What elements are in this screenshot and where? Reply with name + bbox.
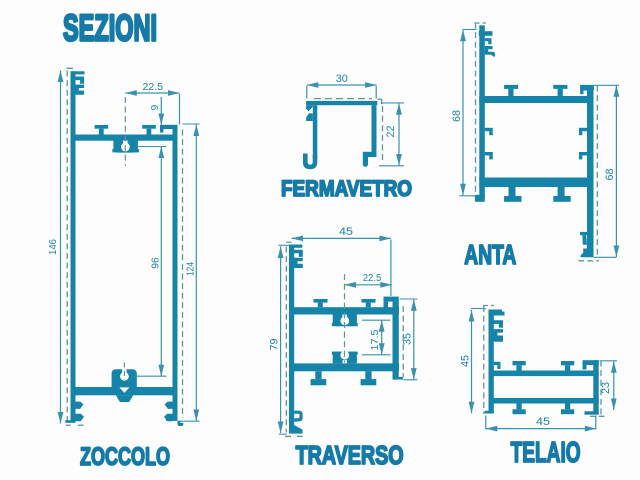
svg-text:23: 23 bbox=[600, 382, 612, 394]
svg-text:22.5: 22.5 bbox=[363, 273, 382, 284]
svg-text:68: 68 bbox=[604, 169, 616, 181]
svg-text:45: 45 bbox=[536, 416, 550, 428]
svg-text:ZOCCOLO: ZOCCOLO bbox=[80, 443, 170, 471]
svg-text:45: 45 bbox=[459, 355, 471, 367]
svg-text:30: 30 bbox=[336, 73, 348, 85]
svg-text:22.5: 22.5 bbox=[143, 82, 164, 93]
svg-text:79: 79 bbox=[269, 339, 281, 351]
svg-text:146: 146 bbox=[47, 239, 59, 255]
svg-text:TRAVERSO: TRAVERSO bbox=[296, 442, 404, 470]
svg-text:96: 96 bbox=[149, 257, 161, 269]
svg-text:17.5: 17.5 bbox=[369, 329, 381, 350]
svg-text:TELAIO: TELAIO bbox=[511, 437, 581, 469]
svg-text:ANTA: ANTA bbox=[464, 239, 516, 270]
svg-text:124: 124 bbox=[185, 262, 197, 276]
svg-text:9: 9 bbox=[150, 104, 161, 110]
svg-text:SEZIONI: SEZIONI bbox=[63, 8, 157, 49]
svg-text:45: 45 bbox=[339, 226, 353, 238]
svg-text:68: 68 bbox=[451, 110, 463, 122]
svg-text:22: 22 bbox=[385, 126, 397, 138]
svg-text:FERMAVETRO: FERMAVETRO bbox=[281, 176, 412, 201]
